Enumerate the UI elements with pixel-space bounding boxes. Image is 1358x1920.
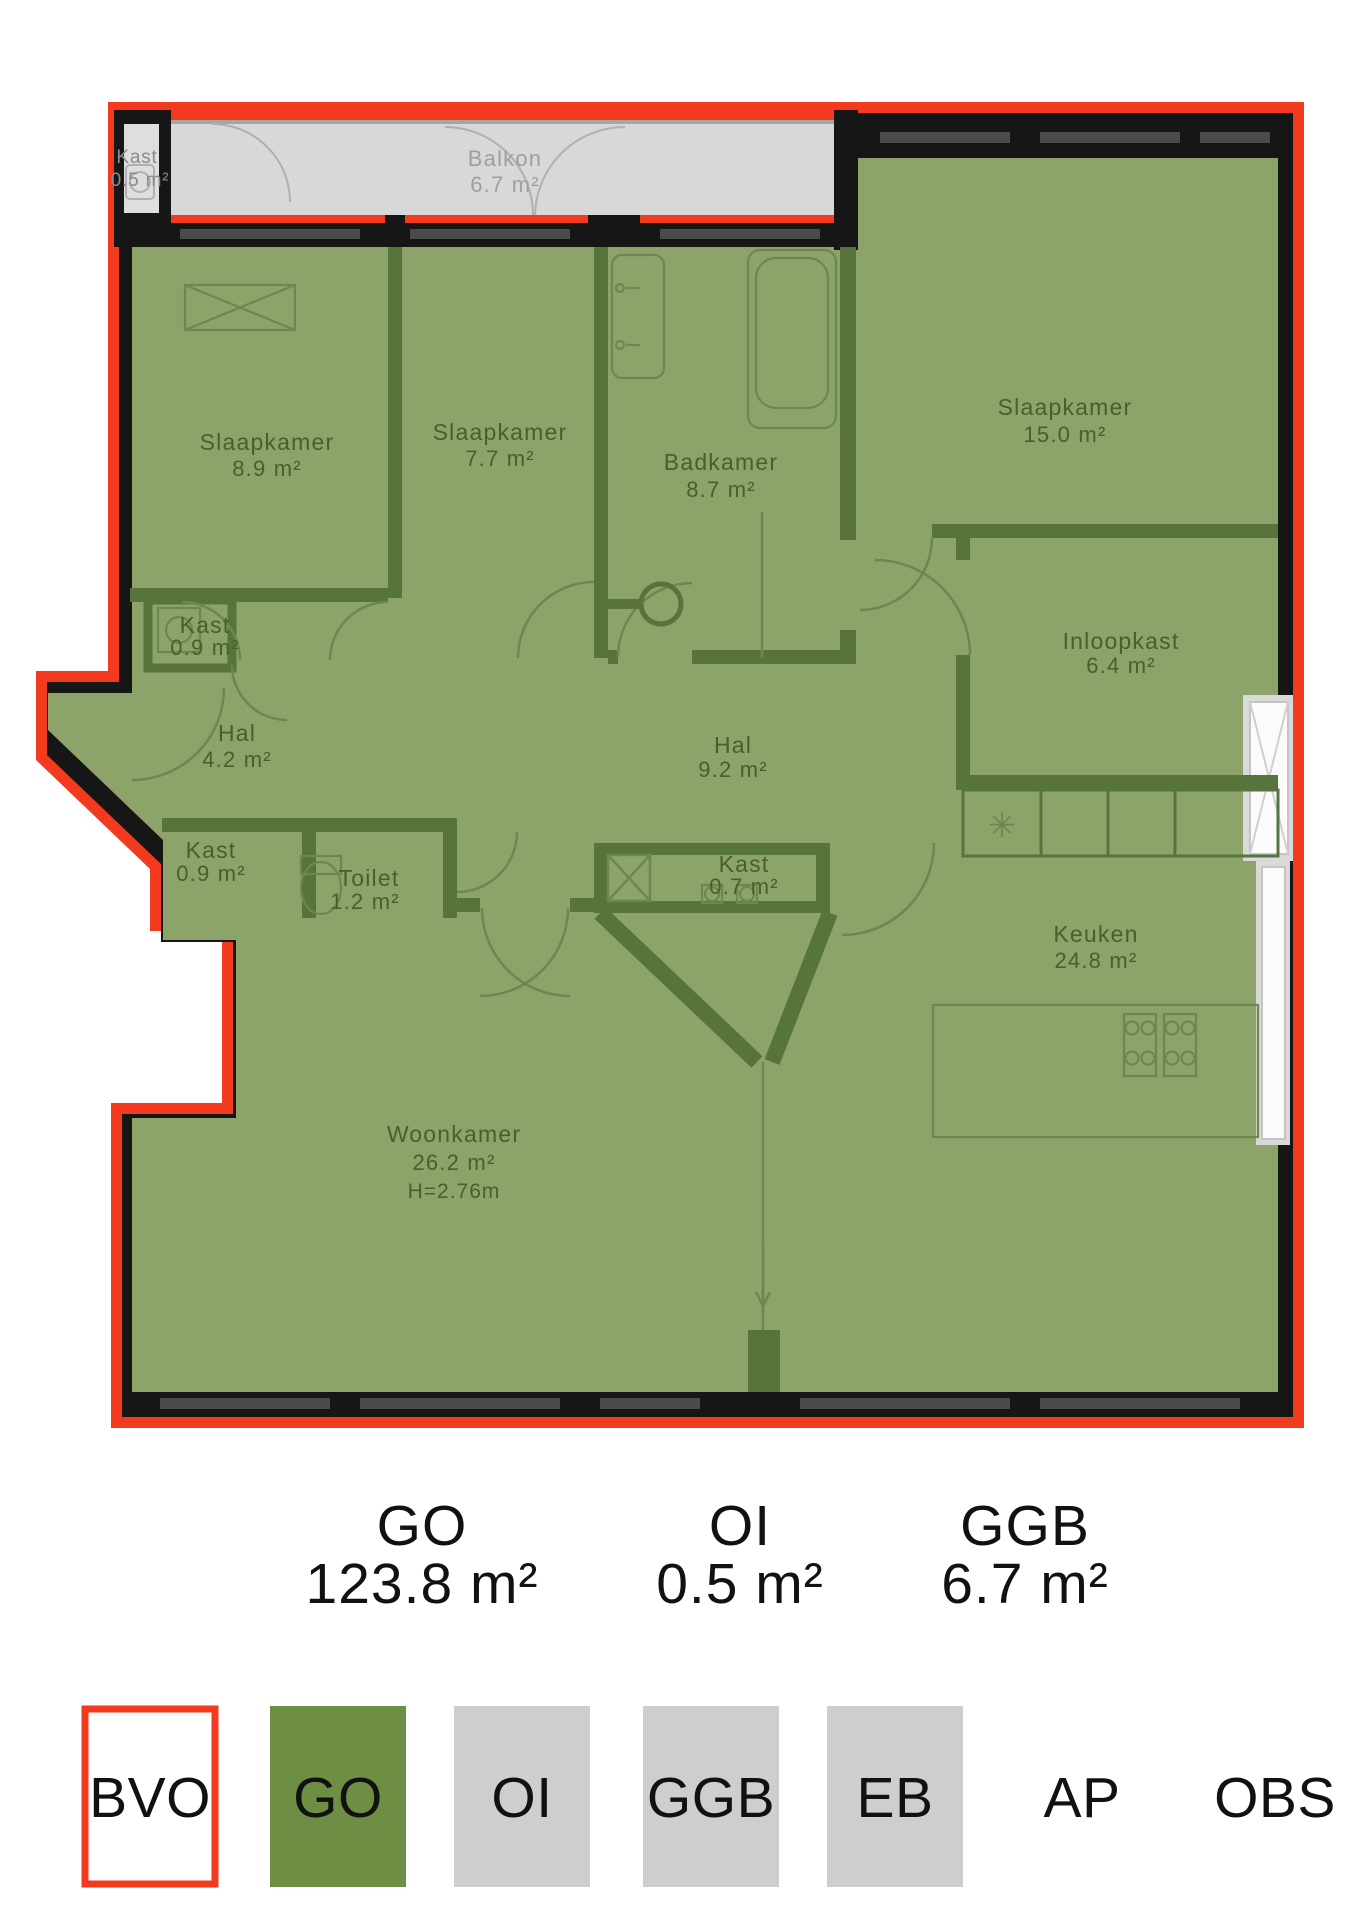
svg-text:Kast: Kast bbox=[186, 837, 237, 863]
svg-text:7.7 m²: 7.7 m² bbox=[465, 446, 535, 471]
svg-text:Slaapkamer: Slaapkamer bbox=[200, 429, 335, 455]
room-label-balkon: Balkon 6.7 m² bbox=[468, 146, 542, 197]
svg-text:Inloopkast: Inloopkast bbox=[1063, 628, 1180, 654]
svg-text:0.7 m²: 0.7 m² bbox=[709, 874, 779, 899]
legend-item-bvo: BVO bbox=[85, 1709, 215, 1884]
summary-go-code: GO bbox=[377, 1494, 468, 1558]
svg-text:BVO: BVO bbox=[89, 1766, 211, 1830]
svg-text:0.9 m²: 0.9 m² bbox=[170, 635, 240, 660]
legend-item-go: GO bbox=[270, 1706, 406, 1887]
legend-item-ap: AP bbox=[1043, 1766, 1120, 1830]
svg-text:Slaapkamer: Slaapkamer bbox=[433, 419, 568, 445]
svg-text:Kast: Kast bbox=[116, 147, 157, 168]
legend-item-oi: OI bbox=[454, 1706, 590, 1887]
legend-item-eb: EB bbox=[827, 1706, 963, 1887]
summary-oi-code: OI bbox=[709, 1494, 771, 1558]
summary-ggb-code: GGB bbox=[960, 1494, 1090, 1558]
svg-text:Woonkamer: Woonkamer bbox=[387, 1121, 521, 1147]
svg-text:Badkamer: Badkamer bbox=[664, 449, 778, 475]
floorplan-page: ✳ Kast 0.5 m² Balkon 6.7 m² Slaapkamer 8… bbox=[0, 0, 1358, 1920]
svg-text:8.7 m²: 8.7 m² bbox=[686, 477, 756, 502]
room-label-kast-09-onder: Kast 0.9 m² bbox=[176, 837, 246, 886]
svg-text:Hal: Hal bbox=[218, 720, 256, 746]
summary-ggb-value: 6.7 m² bbox=[941, 1552, 1109, 1616]
svg-text:26.2 m²: 26.2 m² bbox=[413, 1150, 496, 1175]
summary-oi-value: 0.5 m² bbox=[656, 1552, 824, 1616]
svg-text:1.2 m²: 1.2 m² bbox=[330, 889, 400, 914]
svg-text:4.2 m²: 4.2 m² bbox=[202, 747, 272, 772]
svg-text:Toilet: Toilet bbox=[339, 865, 400, 891]
svg-text:24.8 m²: 24.8 m² bbox=[1055, 948, 1138, 973]
svg-text:0.5 m²: 0.5 m² bbox=[111, 170, 170, 191]
svg-text:Keuken: Keuken bbox=[1053, 921, 1138, 947]
svg-text:6.4 m²: 6.4 m² bbox=[1086, 653, 1156, 678]
svg-text:GO: GO bbox=[293, 1766, 383, 1830]
svg-text:OI: OI bbox=[491, 1766, 552, 1830]
legend-item-obs: OBS bbox=[1214, 1766, 1336, 1830]
svg-text:Balkon: Balkon bbox=[468, 146, 542, 171]
svg-text:Slaapkamer: Slaapkamer bbox=[998, 394, 1133, 420]
washer-asterisk-icon: ✳ bbox=[988, 807, 1017, 845]
area-summary: GO 123.8 m² OI 0.5 m² GGB 6.7 m² bbox=[306, 1494, 1109, 1616]
legend: BVO GO OI GGB EB AP OBS bbox=[85, 1706, 1336, 1887]
svg-text:6.7 m²: 6.7 m² bbox=[470, 172, 540, 197]
svg-text:8.9 m²: 8.9 m² bbox=[232, 456, 302, 481]
svg-text:0.9 m²: 0.9 m² bbox=[176, 861, 246, 886]
svg-text:Hal: Hal bbox=[714, 732, 752, 758]
svg-text:H=2.76m: H=2.76m bbox=[408, 1180, 501, 1203]
floorplan-canvas: ✳ Kast 0.5 m² Balkon 6.7 m² Slaapkamer 8… bbox=[0, 0, 1358, 1920]
svg-text:GGB: GGB bbox=[647, 1766, 775, 1830]
legend-item-ggb: GGB bbox=[643, 1706, 779, 1887]
room-label-kast-09-boven: Kast 0.9 m² bbox=[170, 612, 240, 660]
room-label-kast-07: Kast 0.7 m² bbox=[709, 851, 779, 899]
svg-text:EB: EB bbox=[856, 1766, 933, 1830]
svg-text:9.2 m²: 9.2 m² bbox=[698, 757, 768, 782]
svg-text:15.0 m²: 15.0 m² bbox=[1024, 422, 1107, 447]
summary-go-value: 123.8 m² bbox=[306, 1552, 539, 1616]
room-label-toilet: Toilet 1.2 m² bbox=[330, 865, 400, 914]
